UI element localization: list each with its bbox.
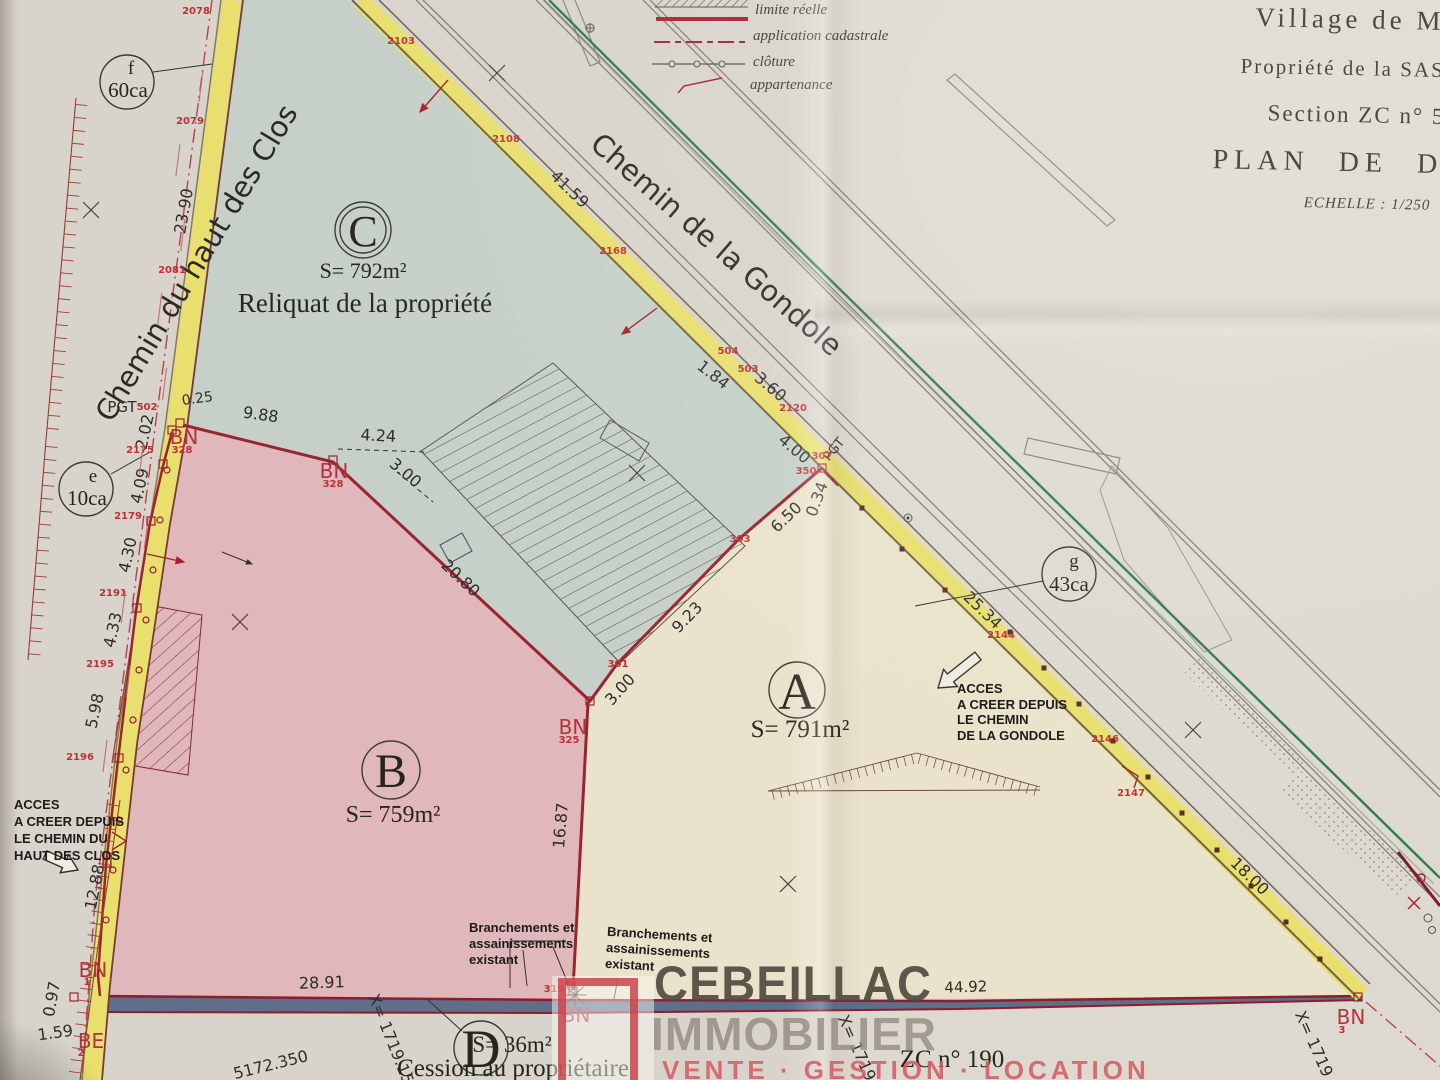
zone-e-area: 10ca [67,486,107,510]
access-clos-line4: HAUT DES CLOS [14,847,124,864]
parcel-a-letter: A [778,664,816,721]
access-gondole-line1: ACCES [957,681,1067,697]
boundary-dot [900,547,905,552]
boundary-dot [1042,666,1047,671]
survey-point-label: 2191 [99,588,127,599]
measurement-label: 16.87 [549,802,572,849]
access-gondole-line2: A CREER DEPUIS [957,697,1067,713]
parcel-c-area: S= 792m² [320,258,407,283]
parcel-b-area: S= 759m² [346,802,441,828]
measurement-label: 28.91 [299,972,345,993]
boundary-dot [1249,884,1254,889]
title-section: Section ZC n° 5 [1267,100,1440,130]
zone-g-area: 43ca [1049,572,1089,596]
boundary-dot [1180,811,1185,816]
survey-point-label: 2078 [182,6,210,17]
title-village: Village de MEZ [1255,2,1440,38]
parcel-c-letter: C [348,207,377,256]
survey-point-label: 2179 [114,511,142,522]
access-note-gondole: ACCES A CREER DEPUIS LE CHEMIN DE LA GON… [957,681,1067,743]
survey-point-label: 2195 [86,659,114,670]
measurement-label: 4.24 [360,425,397,446]
access-clos-line2: A CREER DEPUIS [14,813,124,830]
title-echelle: ECHELLE : 1/250 [1304,195,1431,215]
boundary-marker-label: BN [1337,1005,1366,1029]
legend-item-limite: limite réelle [755,2,827,18]
watermark-logo [552,976,654,1080]
survey-point-label: 307 [812,451,833,462]
survey-point-label: 2103 [387,36,415,47]
branchements-note-1: Branchements et assainissements existant [469,920,574,968]
title-propriete: Propriété de la SAS [1240,54,1440,83]
measurement-label: PGT [107,398,137,416]
boundary-dot [1284,920,1289,925]
boundary-dot [1318,957,1323,962]
boundary-dot [860,506,865,511]
survey-point-label: 2120 [779,403,807,414]
branch1-line2: assainissements [469,936,574,952]
cadastral-plan-photo: Chemin du haut des Clos Chemin de la Gon… [0,0,1440,1080]
zone-f-letter: f [128,58,135,79]
zc-190-label: ZC n° 190 [900,1046,1004,1073]
branch1-line1: Branchements et [469,920,574,936]
zone-e-letter: e [89,466,97,487]
boundary-dot [1146,775,1151,780]
zone-f-area: 60ca [108,78,148,102]
boundary-dot [943,588,948,593]
branch1-line3: existant [469,952,574,968]
boundary-dot [1111,739,1116,744]
boundary-marker-label: BN [170,425,199,449]
survey-point-label: 2168 [599,246,627,257]
survey-point-label: 2175 [126,445,154,456]
survey-point-label: 503 [738,364,759,375]
survey-point-label: 2147 [1117,788,1145,799]
boundary-marker-label: BE [78,1029,104,1053]
legend-item-cloture: clôture [753,54,795,70]
access-gondole-line4: DE LA GONDOLE [957,728,1067,744]
legend-item-appartenance: appartenance [750,77,833,93]
boundary-marker-label: BN [559,715,588,739]
survey-point-label: 2108 [492,134,520,145]
parcel-c-note: Reliquat de la propriété [238,288,492,318]
parcel-a-area: S= 791m² [751,716,850,743]
zone-g-letter: g [1069,551,1079,572]
survey-point-label: 502 [137,402,158,413]
boundary-dot [1077,702,1082,707]
survey-point-label: 350 [796,466,817,477]
boundary-marker-label: BN [320,459,349,483]
survey-point-label: 2081 [158,265,186,276]
boundary-dot [1008,630,1013,635]
legend-item-cadastrale: application cadastrale [753,28,889,44]
title-plan-de-division: PLAN DE DIVI [1212,144,1440,182]
survey-point-label: 301 [608,659,629,670]
branchements-note-2: Branchements et assainissements existant [605,924,713,978]
watermark-logo-square [558,978,638,1080]
parcel-d-area: S= 36m² [472,1032,551,1057]
access-clos-line1: ACCES [14,796,124,813]
survey-point-label: 2079 [176,116,204,127]
boundary-dot [1215,848,1220,853]
survey-point-label: 504 [718,346,739,357]
access-gondole-line3: LE CHEMIN [957,712,1067,728]
parcel-b-letter: B [375,745,407,798]
survey-point-label: 303 [730,534,751,545]
survey-point-label: 2196 [66,752,94,763]
measurement-label: 44.92 [944,977,988,996]
access-note-clos: ACCES A CREER DEPUIS LE CHEMIN DU HAUT D… [14,796,124,864]
access-clos-line3: LE CHEMIN DU [14,830,124,847]
